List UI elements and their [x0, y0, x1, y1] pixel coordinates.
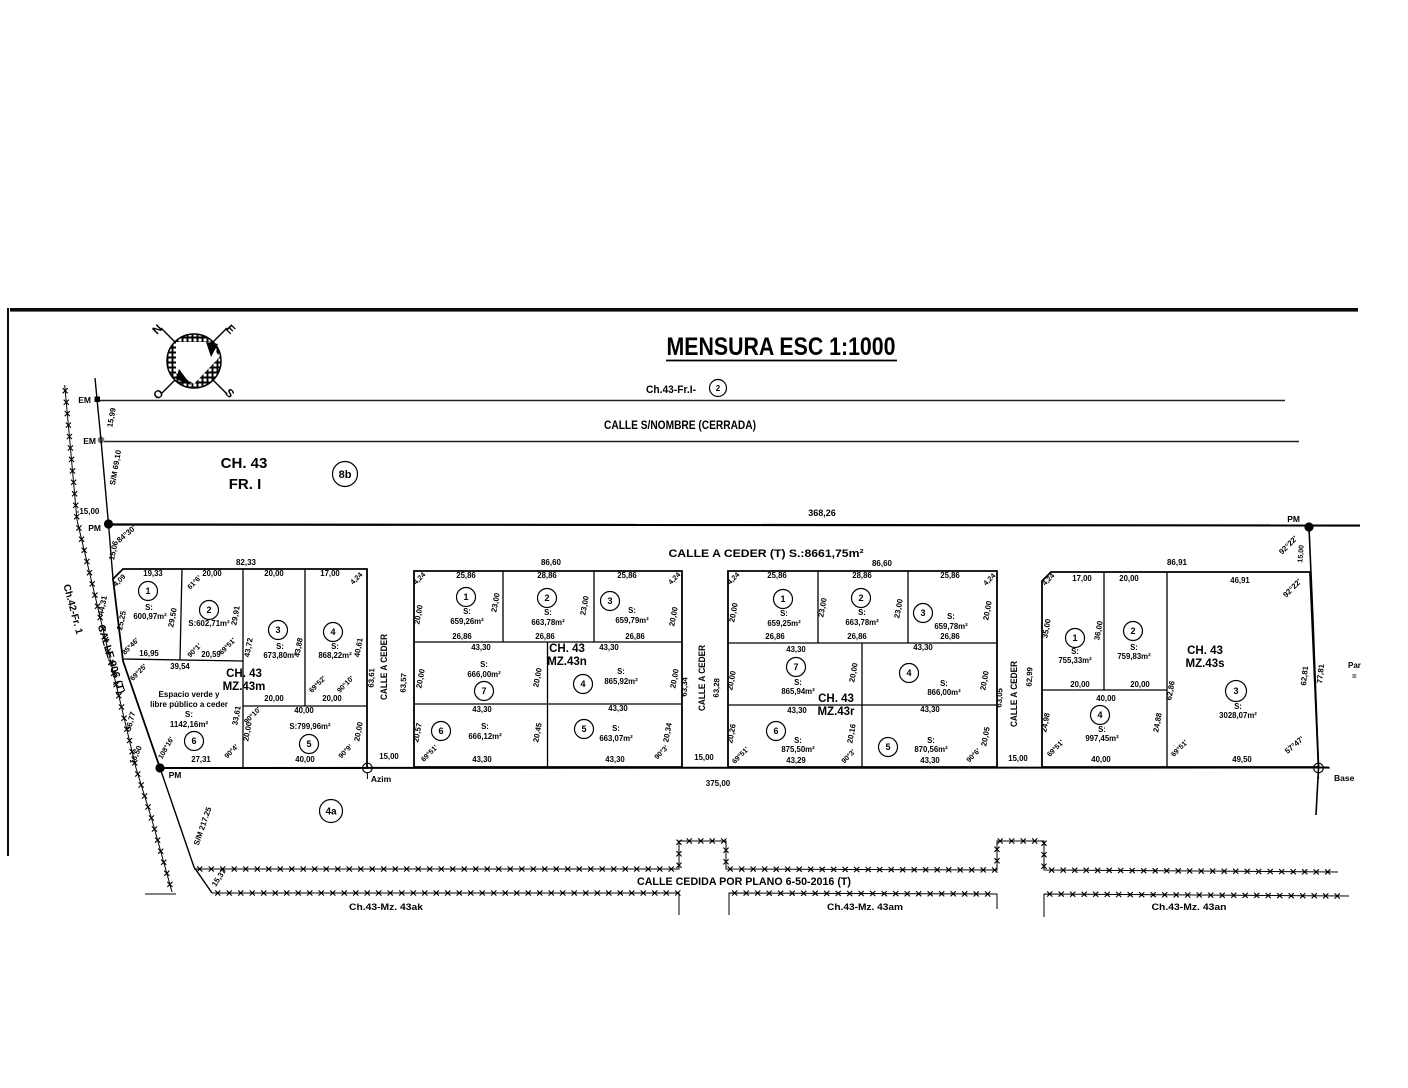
svg-text:43,30: 43,30	[472, 755, 492, 764]
svg-text:EM: EM	[78, 395, 91, 405]
svg-text:CH. 43: CH. 43	[549, 643, 585, 655]
svg-text:8b: 8b	[339, 469, 352, 481]
svg-text:Base: Base	[1334, 773, 1355, 783]
svg-text:S:: S:	[1098, 725, 1106, 734]
svg-text:MZ.43s: MZ.43s	[1186, 658, 1225, 670]
svg-text:28,86: 28,86	[537, 571, 557, 580]
svg-text:4a: 4a	[325, 807, 337, 818]
svg-text:S:: S:	[947, 612, 955, 621]
svg-text:20,00: 20,00	[1070, 680, 1090, 689]
svg-text:663,07m²: 663,07m²	[599, 734, 633, 743]
svg-text:2: 2	[716, 384, 721, 393]
svg-text:=: =	[1352, 672, 1357, 681]
svg-text:86,60: 86,60	[541, 558, 562, 567]
svg-text:5: 5	[306, 739, 311, 749]
svg-text:43,29: 43,29	[786, 756, 806, 765]
svg-text:4: 4	[330, 627, 335, 637]
svg-text:MZ.43m: MZ.43m	[223, 681, 266, 693]
svg-text:3: 3	[607, 596, 612, 606]
svg-text:4: 4	[906, 668, 911, 678]
svg-text:CALLE A CEDER: CALLE A CEDER	[1009, 661, 1020, 727]
svg-text:CH. 43: CH. 43	[1187, 645, 1223, 657]
svg-text:25,86: 25,86	[940, 571, 960, 580]
svg-text:S:: S:	[927, 736, 935, 745]
svg-text:666,00m²: 666,00m²	[467, 670, 501, 679]
svg-text:659,25m²: 659,25m²	[767, 619, 801, 628]
svg-text:Azim: Azim	[371, 774, 392, 784]
svg-text:S:: S:	[612, 724, 620, 733]
svg-text:46,91: 46,91	[1230, 576, 1250, 585]
svg-text:2: 2	[206, 605, 211, 615]
svg-text:25,86: 25,86	[456, 571, 476, 580]
svg-text:libre público a ceder: libre público a ceder	[150, 700, 228, 709]
svg-text:875,50m²: 875,50m²	[781, 745, 815, 754]
svg-text:4: 4	[580, 679, 585, 689]
svg-text:1: 1	[463, 592, 468, 602]
svg-text:26,86: 26,86	[847, 632, 867, 641]
svg-text:26,86: 26,86	[765, 632, 785, 641]
svg-text:2: 2	[1130, 626, 1135, 636]
svg-text:CALLE CEDIDA POR PLANO 6-50-20: CALLE CEDIDA POR PLANO 6-50-2016 (T)	[637, 876, 851, 888]
svg-text:43,30: 43,30	[787, 706, 807, 715]
svg-text:5: 5	[885, 742, 890, 752]
svg-text:870,56m²: 870,56m²	[914, 745, 948, 754]
svg-text:15,00: 15,00	[694, 753, 714, 762]
svg-text:86,91: 86,91	[1167, 558, 1188, 567]
svg-text:26,86: 26,86	[452, 632, 472, 641]
svg-text:15,00: 15,00	[1008, 754, 1028, 763]
svg-text:40,00: 40,00	[295, 755, 315, 764]
svg-text:866,00m²: 866,00m²	[927, 688, 961, 697]
svg-text:82,33: 82,33	[236, 558, 257, 567]
svg-text:3028,07m²: 3028,07m²	[1219, 711, 1257, 720]
svg-text:17,00: 17,00	[320, 569, 340, 578]
svg-text:63,57: 63,57	[398, 673, 408, 693]
svg-text:CH. 43: CH. 43	[818, 693, 854, 705]
svg-text:S:: S:	[1234, 702, 1242, 711]
svg-text:63,34: 63,34	[679, 676, 689, 697]
svg-text:26,86: 26,86	[535, 632, 555, 641]
svg-text:759,83m²: 759,83m²	[1117, 652, 1151, 661]
svg-text:6: 6	[191, 736, 196, 746]
svg-text:MZ.43n: MZ.43n	[547, 656, 587, 668]
svg-text:865,92m²: 865,92m²	[604, 677, 638, 686]
svg-text:15,00: 15,00	[379, 752, 399, 761]
svg-text:368,26: 368,26	[808, 508, 836, 518]
svg-text:1: 1	[145, 586, 150, 596]
svg-text:Ch.43-Mz. 43am: Ch.43-Mz. 43am	[827, 902, 903, 913]
svg-text:S:: S:	[940, 679, 948, 688]
svg-text:20,00: 20,00	[202, 569, 222, 578]
svg-text:659,26m²: 659,26m²	[450, 617, 484, 626]
svg-text:43,30: 43,30	[605, 755, 625, 764]
svg-text:7: 7	[481, 686, 486, 696]
svg-text:EM: EM	[83, 436, 96, 446]
svg-text:CH. 43: CH. 43	[221, 455, 268, 472]
svg-text:CALLE A CEDER (T) S.:8661,75m: CALLE A CEDER (T) S.:8661,75m²	[669, 548, 864, 560]
svg-text:659,78m²: 659,78m²	[934, 622, 968, 631]
svg-text:S:: S:	[617, 667, 625, 676]
svg-text:63,61: 63,61	[366, 667, 376, 688]
svg-text:MENSURA ESC 1:1000: MENSURA ESC 1:1000	[667, 333, 896, 361]
svg-text:2: 2	[858, 593, 863, 603]
svg-text:63,05: 63,05	[994, 687, 1004, 708]
svg-text:49,50: 49,50	[1232, 755, 1252, 764]
svg-text:S:: S:	[858, 608, 866, 617]
svg-text:S:: S:	[1130, 643, 1138, 652]
svg-text:20,00: 20,00	[264, 569, 284, 578]
svg-text:663,78m²: 663,78m²	[845, 618, 879, 627]
svg-text:659,79m²: 659,79m²	[615, 616, 649, 625]
svg-text:600,97m²: 600,97m²	[133, 612, 167, 621]
svg-text:43,30: 43,30	[913, 643, 933, 652]
svg-text:43,30: 43,30	[608, 704, 628, 713]
svg-text:25,86: 25,86	[617, 571, 637, 580]
svg-text:S:: S:	[780, 609, 788, 618]
svg-text:20,00: 20,00	[1130, 680, 1150, 689]
svg-text:997,45m²: 997,45m²	[1085, 734, 1119, 743]
svg-text:FR. I: FR. I	[229, 476, 262, 493]
svg-text:CALLE A CEDER: CALLE A CEDER	[379, 634, 390, 700]
svg-text:3: 3	[920, 608, 925, 618]
svg-text:S:: S:	[1071, 647, 1079, 656]
svg-text:43,30: 43,30	[786, 645, 806, 654]
svg-text:1: 1	[780, 594, 785, 604]
svg-text:CH. 43: CH. 43	[226, 668, 262, 680]
svg-text:20,00: 20,00	[322, 694, 342, 703]
svg-text:S:: S:	[145, 603, 153, 612]
svg-text:S:602,71m²: S:602,71m²	[188, 619, 230, 628]
svg-text:S:: S:	[463, 607, 471, 616]
svg-text:40,00: 40,00	[294, 706, 314, 715]
svg-text:666,12m²: 666,12m²	[468, 732, 502, 741]
svg-text:S:: S:	[628, 606, 636, 615]
svg-text:Par: Par	[1348, 661, 1361, 670]
svg-text:25,86: 25,86	[767, 571, 787, 580]
svg-text:40,00: 40,00	[1096, 694, 1116, 703]
svg-text:43,30: 43,30	[599, 643, 619, 652]
svg-text:PM: PM	[1287, 514, 1300, 524]
svg-text:S:: S:	[481, 722, 489, 731]
svg-text:3: 3	[1233, 686, 1238, 696]
svg-text:43,30: 43,30	[920, 756, 940, 765]
svg-text:27,31: 27,31	[191, 755, 211, 764]
svg-text:S:: S:	[276, 642, 284, 651]
svg-text:Espacio verde y: Espacio verde y	[159, 690, 220, 699]
svg-text:S:: S:	[480, 660, 488, 669]
svg-text:755,33m²: 755,33m²	[1058, 656, 1092, 665]
svg-text:3: 3	[275, 625, 280, 635]
svg-text:20,00: 20,00	[264, 694, 284, 703]
svg-text:5: 5	[581, 724, 586, 734]
svg-text:PM: PM	[88, 523, 101, 533]
svg-text:865,94m²: 865,94m²	[781, 687, 815, 696]
svg-text:2: 2	[544, 593, 549, 603]
svg-text:S:: S:	[544, 608, 552, 617]
svg-text:17,00: 17,00	[1072, 574, 1092, 583]
svg-text:S:: S:	[794, 678, 802, 687]
svg-text:39,54: 39,54	[170, 662, 190, 671]
svg-text:26,86: 26,86	[940, 632, 960, 641]
svg-text:43,30: 43,30	[920, 705, 940, 714]
svg-text:28,86: 28,86	[852, 571, 872, 580]
svg-text:20,00: 20,00	[1119, 574, 1139, 583]
svg-text:7: 7	[793, 662, 798, 672]
svg-text:6: 6	[438, 726, 443, 736]
svg-text:Ch.43-Mz. 43an: Ch.43-Mz. 43an	[1152, 902, 1227, 913]
svg-text:40,00: 40,00	[1091, 755, 1111, 764]
svg-text:S:: S:	[794, 736, 802, 745]
svg-text:868,22m²: 868,22m²	[318, 651, 352, 660]
svg-text:S:: S:	[331, 642, 339, 651]
svg-text:62,99: 62,99	[1024, 666, 1034, 687]
svg-text:663,78m²: 663,78m²	[531, 618, 565, 627]
svg-text:Ch.43-Mz. 43ak: Ch.43-Mz. 43ak	[349, 902, 424, 913]
svg-text:CALLE A CEDER: CALLE A CEDER	[697, 645, 708, 711]
svg-text:1142,16m²: 1142,16m²	[170, 720, 209, 729]
svg-text:43,30: 43,30	[471, 643, 491, 652]
svg-text:375,00: 375,00	[706, 779, 731, 788]
svg-text:26,86: 26,86	[625, 632, 645, 641]
svg-text:PM: PM	[169, 770, 182, 780]
svg-text:86,60: 86,60	[872, 559, 893, 568]
svg-text:16,95: 16,95	[139, 649, 159, 658]
svg-text:S:799,96m²: S:799,96m²	[289, 722, 331, 731]
svg-text:19,33: 19,33	[143, 569, 163, 578]
svg-text:CALLE S/NOMBRE (CERRADA): CALLE S/NOMBRE (CERRADA)	[604, 420, 756, 432]
svg-text:S:: S:	[185, 710, 193, 719]
svg-text:4: 4	[1097, 710, 1102, 720]
svg-text:MZ.43r: MZ.43r	[817, 706, 855, 718]
svg-text:6: 6	[773, 726, 778, 736]
svg-text:43,30: 43,30	[472, 705, 492, 714]
svg-text:1: 1	[1072, 633, 1077, 643]
svg-text:-15,00: -15,00	[77, 507, 100, 516]
svg-text:Ch.43-Fr.I-: Ch.43-Fr.I-	[646, 384, 696, 396]
svg-text:63,28: 63,28	[711, 677, 721, 698]
svg-text:15,00: 15,00	[1296, 545, 1306, 563]
